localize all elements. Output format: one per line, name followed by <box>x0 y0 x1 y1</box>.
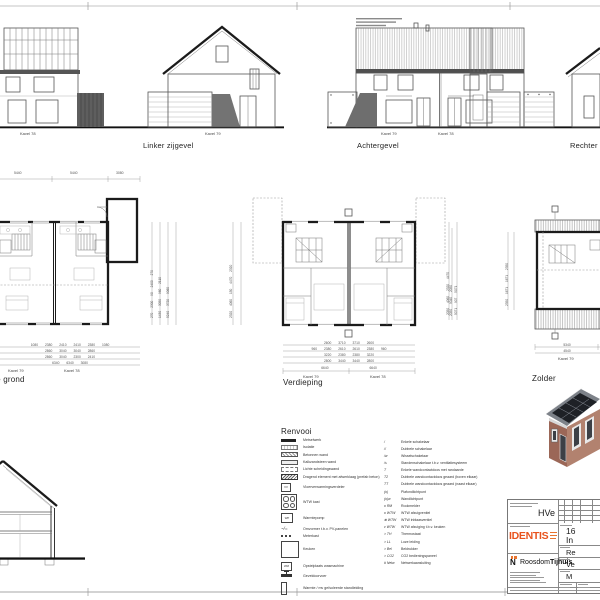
legend-item: Lichte scheidingswand <box>281 467 393 472</box>
legend-item: Betonnen wand <box>281 452 393 457</box>
elevation-title-linker: Linker zijgevel <box>143 141 194 150</box>
isolatie-swatch-icon <box>281 445 299 450</box>
sheet: { "colors": { "accent_orange": "#E8531E"… <box>0 0 600 600</box>
floorplan-zolder <box>449 206 600 353</box>
legend-item: Keuken <box>281 541 393 558</box>
dim-chain: 2600 3710 3710 2600 <box>283 341 415 345</box>
dim-chain-vertical: 2050 4060 2320 4470 <box>446 272 450 315</box>
legend-item: Isolatie <box>281 445 393 450</box>
dim-chain: 2800 3440 3440 2800 <box>283 359 415 363</box>
dim-chain: 1080 2380 2410 2410 2380 1080 <box>0 343 140 347</box>
titleblock-cell: Ve <box>566 560 575 569</box>
titleblock-cell: Re <box>566 548 576 557</box>
dim-chain-vertical: 2350 1671 1671 2350 <box>505 263 509 306</box>
legend-item: Metselwerk <box>281 438 393 442</box>
legend-item: Warmte / mv geïsoleerde standleiding <box>281 582 393 595</box>
legend-item: (o)Plafondlichtpunt <box>384 488 509 495</box>
legend-item: Meterkast <box>281 534 393 538</box>
standleiding-icon <box>281 582 299 595</box>
kalkzandsteen-swatch-icon <box>281 460 299 465</box>
kavel-label: Kavel 78 <box>64 368 80 373</box>
dim-chain: 6340 6340 3080 <box>0 361 140 365</box>
legend-item: ⊕ WTWWTW inblaasventiel <box>384 517 509 524</box>
section-drawing <box>0 461 85 565</box>
legend-item: (o)wWandlichtpunt <box>384 495 509 502</box>
dim-value: 5440 <box>70 171 78 175</box>
dim-chain: 2860 3040 2300 2410 <box>0 355 140 359</box>
dragend-element-swatch-icon <box>281 474 299 480</box>
legend-item: v WTWWTW afzuiging t.b.v. keuken <box>384 524 509 531</box>
legend-item: VVVloerverwarmingsverdeler <box>281 483 393 492</box>
legend-item: Kalkzandsteen wand <box>281 460 393 465</box>
pv-omvormer-icon: ~/= <box>281 526 299 531</box>
geveldoorvoer-icon <box>281 574 299 577</box>
legend-renvooi-electra: /Enkele schakelaar //Dubbele schakelaar … <box>384 438 509 567</box>
legend-item: /Enkele schakelaar <box>384 438 509 445</box>
legend-item: o WTWWTW afzuigventiel <box>384 509 509 516</box>
legend-item: > CO2CO2 bedieningspaneel <box>384 552 509 559</box>
plan-title-begane-grond: Begane grond <box>0 375 25 384</box>
dim-chain-vertical: 5071 907 5071 <box>454 286 458 315</box>
wtw-kast-icon <box>281 494 299 510</box>
legend-item: Dragend element met afwerklaag (prefab b… <box>281 474 393 480</box>
lichte-wand-swatch-icon <box>281 467 299 472</box>
legend-item: /wWisselschakelaar <box>384 452 509 459</box>
beton-swatch-icon <box>281 452 299 457</box>
elevation-title-rechter: Rechter zijgevel <box>570 141 600 150</box>
elevation-title-achter: Achtergevel <box>357 141 399 150</box>
legend-item: T2Dubbele wandcontactdoos geaard (boven … <box>384 474 509 481</box>
title-block: HVe IDENTIS N RoosdomTijhuis 16 In Re Ve… <box>507 499 600 594</box>
sheet-code: HVe <box>508 508 555 518</box>
kavel-label: Kavel 78 <box>370 374 386 379</box>
meterkast-icon <box>281 535 299 537</box>
titleblock-cell: In <box>566 535 573 545</box>
kavel-label: Kavel 79 <box>8 368 24 373</box>
wasmachine-box-icon: WM <box>281 562 299 571</box>
identis-logo: IDENTIS <box>509 530 548 542</box>
metselwerk-swatch-icon <box>281 439 299 442</box>
legend-item: > BelBeldrukker <box>384 545 509 552</box>
keuken-box-icon <box>281 541 299 558</box>
dim-chain-vertical: 5240 3720 9060 <box>166 287 170 318</box>
dim-chain: 2860 3040 3040 2860 <box>0 349 140 353</box>
kavel-label: Kavel 79 <box>558 356 574 361</box>
dim-value: 3080 <box>116 171 124 175</box>
verdeler-box-icon: VV <box>281 483 299 492</box>
legend-item: //Dubbele schakelaar <box>384 445 509 452</box>
legend-item: > LLLoze leiding <box>384 538 509 545</box>
roosdomtijhuis-logo: RoosdomTijhuis <box>520 559 572 566</box>
legend-item: # NetwNetwerkaansluiting <box>384 559 509 566</box>
dim-chain-vertical: 1430 3050 960 2110 <box>158 277 162 318</box>
dim-chain: 960 2380 2610 2610 2380 960 <box>283 347 415 351</box>
legend-item: WMOpstelplaats wasmachine <box>281 562 393 571</box>
legend-item: WPWarmtepomp <box>281 513 393 523</box>
roosdom-logo-n: N <box>510 558 516 567</box>
legend-item: Geveldoorvoer <box>281 574 393 578</box>
legend-renvooi: Metselwerk Isolatie Betonnen wand Kalkza… <box>281 428 393 595</box>
legend-item: TTDubbele wandcontactdoos geaard (naast … <box>384 481 509 488</box>
legend-item: TEnkele wandcontactdoos met randaarde <box>384 467 509 474</box>
legend-item: /sStandenschakelaar t.b.v. ventilatiesys… <box>384 459 509 466</box>
dim-chain: 3220 2380 2380 3220 <box>283 353 415 357</box>
elevation-linker-zijgevel <box>148 27 280 127</box>
dim-value: 5440 <box>14 171 22 175</box>
kavel-label: Kavel 79 <box>381 131 397 136</box>
dim-chain-vertical: 2320 4060 150 4470 2320 <box>229 265 233 318</box>
plan-title-verdieping: Verdieping <box>283 378 323 387</box>
kavel-label: Kavel 78 <box>20 131 36 136</box>
dim-chain-vertical: 270 2300 90 2400 270 <box>150 270 154 318</box>
kavel-label: Kavel 78 <box>438 131 454 136</box>
legend-item: ~/=Omvormer t.b.v. PV-panelen <box>281 526 393 531</box>
titleblock-cell: M <box>566 572 572 581</box>
legend-item: > THThermostaat <box>384 531 509 538</box>
legend-item: o RMRookmelder <box>384 502 509 509</box>
legend-item: WTW kast <box>281 494 393 510</box>
elevation-left-partial <box>0 28 104 127</box>
house-3d-render <box>546 387 600 467</box>
dim-chain: 6640 6640 <box>283 366 415 370</box>
dim-chain: 4540 <box>535 349 599 353</box>
dim-chain: 5340 <box>535 343 599 347</box>
warmtepomp-box-icon: WP <box>281 513 299 523</box>
kavel-label: Kavel 79 <box>205 131 221 136</box>
plan-title-zolder: Zolder <box>532 374 556 383</box>
